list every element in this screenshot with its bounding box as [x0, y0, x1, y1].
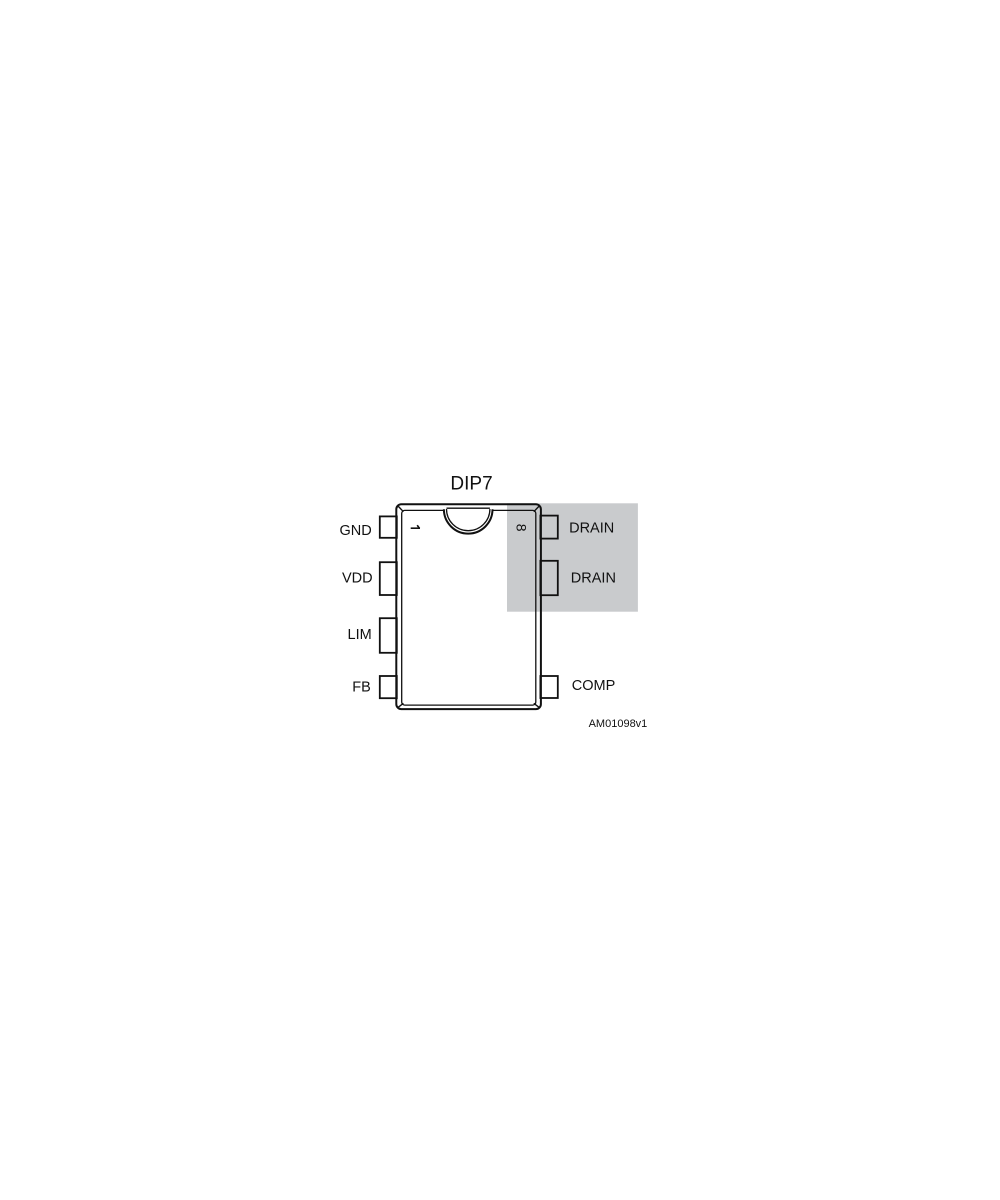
svg-text:LIM: LIM [348, 627, 372, 643]
svg-text:GND: GND [339, 523, 371, 539]
svg-text:DIP7: DIP7 [450, 474, 492, 495]
svg-text:8: 8 [513, 524, 529, 532]
svg-text:DRAIN: DRAIN [569, 520, 614, 536]
svg-text:COMP: COMP [572, 678, 616, 694]
svg-text:FB: FB [352, 679, 371, 695]
svg-text:VDD: VDD [342, 570, 373, 586]
svg-text:AM01098v1: AM01098v1 [589, 718, 648, 730]
svg-text:DRAIN: DRAIN [571, 571, 616, 587]
